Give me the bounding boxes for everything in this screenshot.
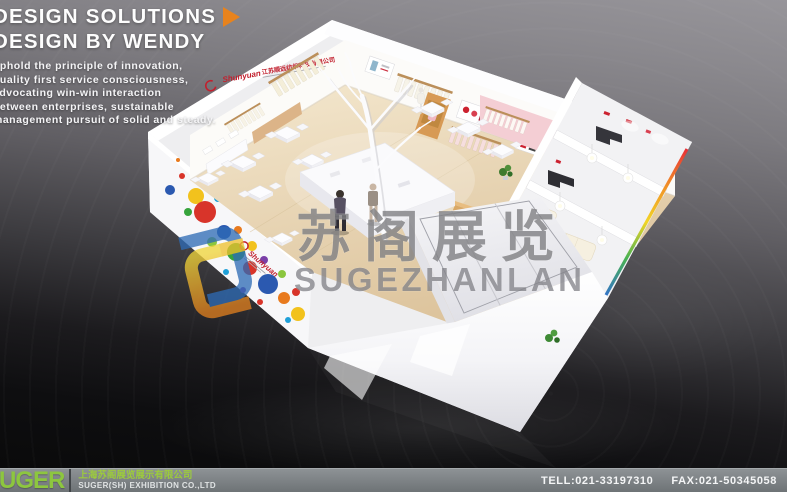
suger-logo: SUGER bbox=[0, 469, 64, 492]
tagline-line: management pursuit of solid and steady. bbox=[0, 114, 240, 128]
company-name-cn: 上海苏阁展览展示有限公司 bbox=[78, 470, 216, 481]
footer-divider bbox=[69, 469, 71, 492]
fax-label: FAX:021-50345058 bbox=[671, 475, 777, 487]
title-line-2: DESIGN BY WENDY bbox=[0, 29, 240, 54]
watermark-en: SUGEZHANLAN bbox=[294, 261, 586, 298]
tagline-line: between enterprises, sustainable bbox=[0, 101, 240, 115]
arrow-icon bbox=[223, 7, 240, 27]
header-block: DESIGN SOLUTIONS DESIGN BY WENDY uphold … bbox=[0, 4, 240, 128]
tagline-line: quality first service consciousness, bbox=[0, 74, 240, 88]
company-block: 上海苏阁展览展示有限公司 SUGER(SH) EXHIBITION CO.,LT… bbox=[78, 470, 216, 491]
company-name-en: SUGER(SH) EXHIBITION CO.,LTD bbox=[78, 481, 216, 491]
poster-background: Shunyuan Shunyuan 江苏顺远纺织科技有限公司 bbox=[0, 0, 787, 492]
title-text-2: DESIGN BY WENDY bbox=[0, 29, 205, 54]
title-text-1: DESIGN SOLUTIONS bbox=[0, 4, 216, 29]
footer-bar: SUGER 上海苏阁展览展示有限公司 SUGER(SH) EXHIBITION … bbox=[0, 468, 787, 492]
tagline-line: advocating win-win interaction bbox=[0, 87, 240, 101]
watermark-cn: 苏阁展览 bbox=[296, 206, 568, 268]
tagline-line: uphold the principle of innovation, bbox=[0, 60, 240, 74]
tel-label: TELL:021-33197310 bbox=[541, 475, 653, 487]
tagline: uphold the principle of innovation, qual… bbox=[0, 60, 240, 128]
title-line-1: DESIGN SOLUTIONS bbox=[0, 4, 240, 29]
